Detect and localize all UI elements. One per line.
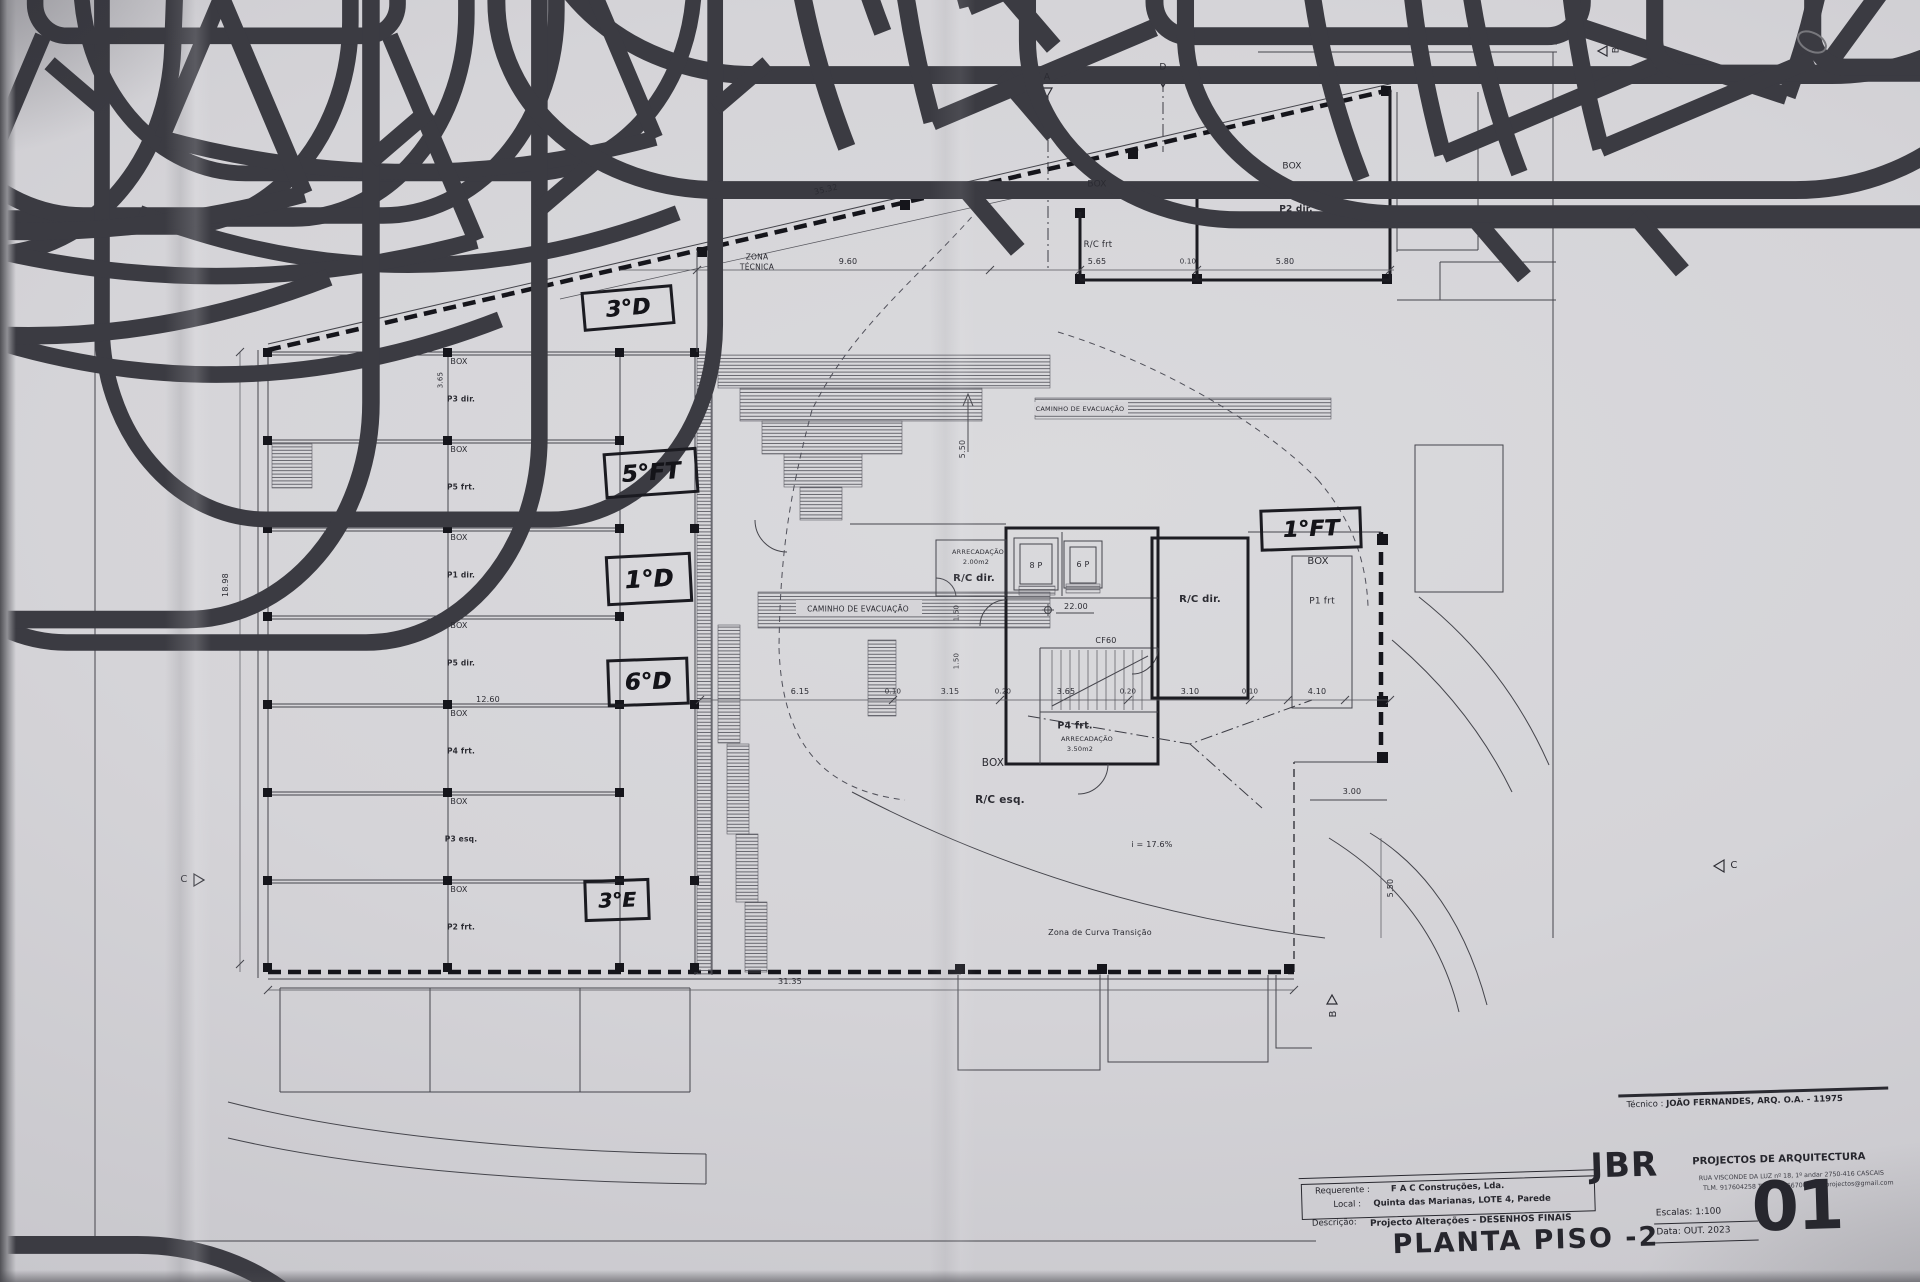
dimension-lines <box>236 178 1394 994</box>
ramp-hatches <box>718 355 1331 972</box>
bottom-outside <box>228 975 1312 1184</box>
scale-line: Escalas: 1:100 <box>1656 1208 1722 1219</box>
escala-value: 1:100 <box>1695 1207 1721 1218</box>
car-icon <box>0 1185 360 1282</box>
data-value: OUT. 2023 <box>1684 1225 1731 1236</box>
local-label: Local : <box>1333 1200 1361 1210</box>
left-parking-block <box>268 352 712 975</box>
title-block: Técnico : JOÃO FERNANDES, ARQ. O.A. - 11… <box>1298 1146 1912 1282</box>
right-outside <box>1310 92 1556 1012</box>
date-line: Data: OUT. 2023 <box>1656 1226 1730 1238</box>
sheet-number: 01 <box>1751 1170 1844 1244</box>
p1-frt-box <box>1292 556 1352 708</box>
requerente-label: Requerente : <box>1315 1186 1370 1197</box>
tecnico-label: Técnico : <box>1626 1099 1663 1110</box>
drawing-title: PLANTA PISO -2 <box>1392 1223 1659 1259</box>
floor-plan-linework <box>0 0 1920 1282</box>
descricao-label: Descrição: <box>1312 1218 1357 1228</box>
data-label: Data: <box>1656 1227 1681 1238</box>
photographed-floor-plan-sheet: { "titleblock": { "tecnico_label": "Técn… <box>0 0 1920 1282</box>
scale-rule <box>1654 1220 1758 1224</box>
drive-lanes <box>779 192 1368 938</box>
escala-label: Escalas: <box>1656 1207 1693 1218</box>
firm-logo: JBR <box>1590 1147 1659 1185</box>
date-rule <box>1655 1239 1759 1243</box>
cars <box>0 0 1920 1282</box>
rc-dir-box <box>1152 538 1248 698</box>
